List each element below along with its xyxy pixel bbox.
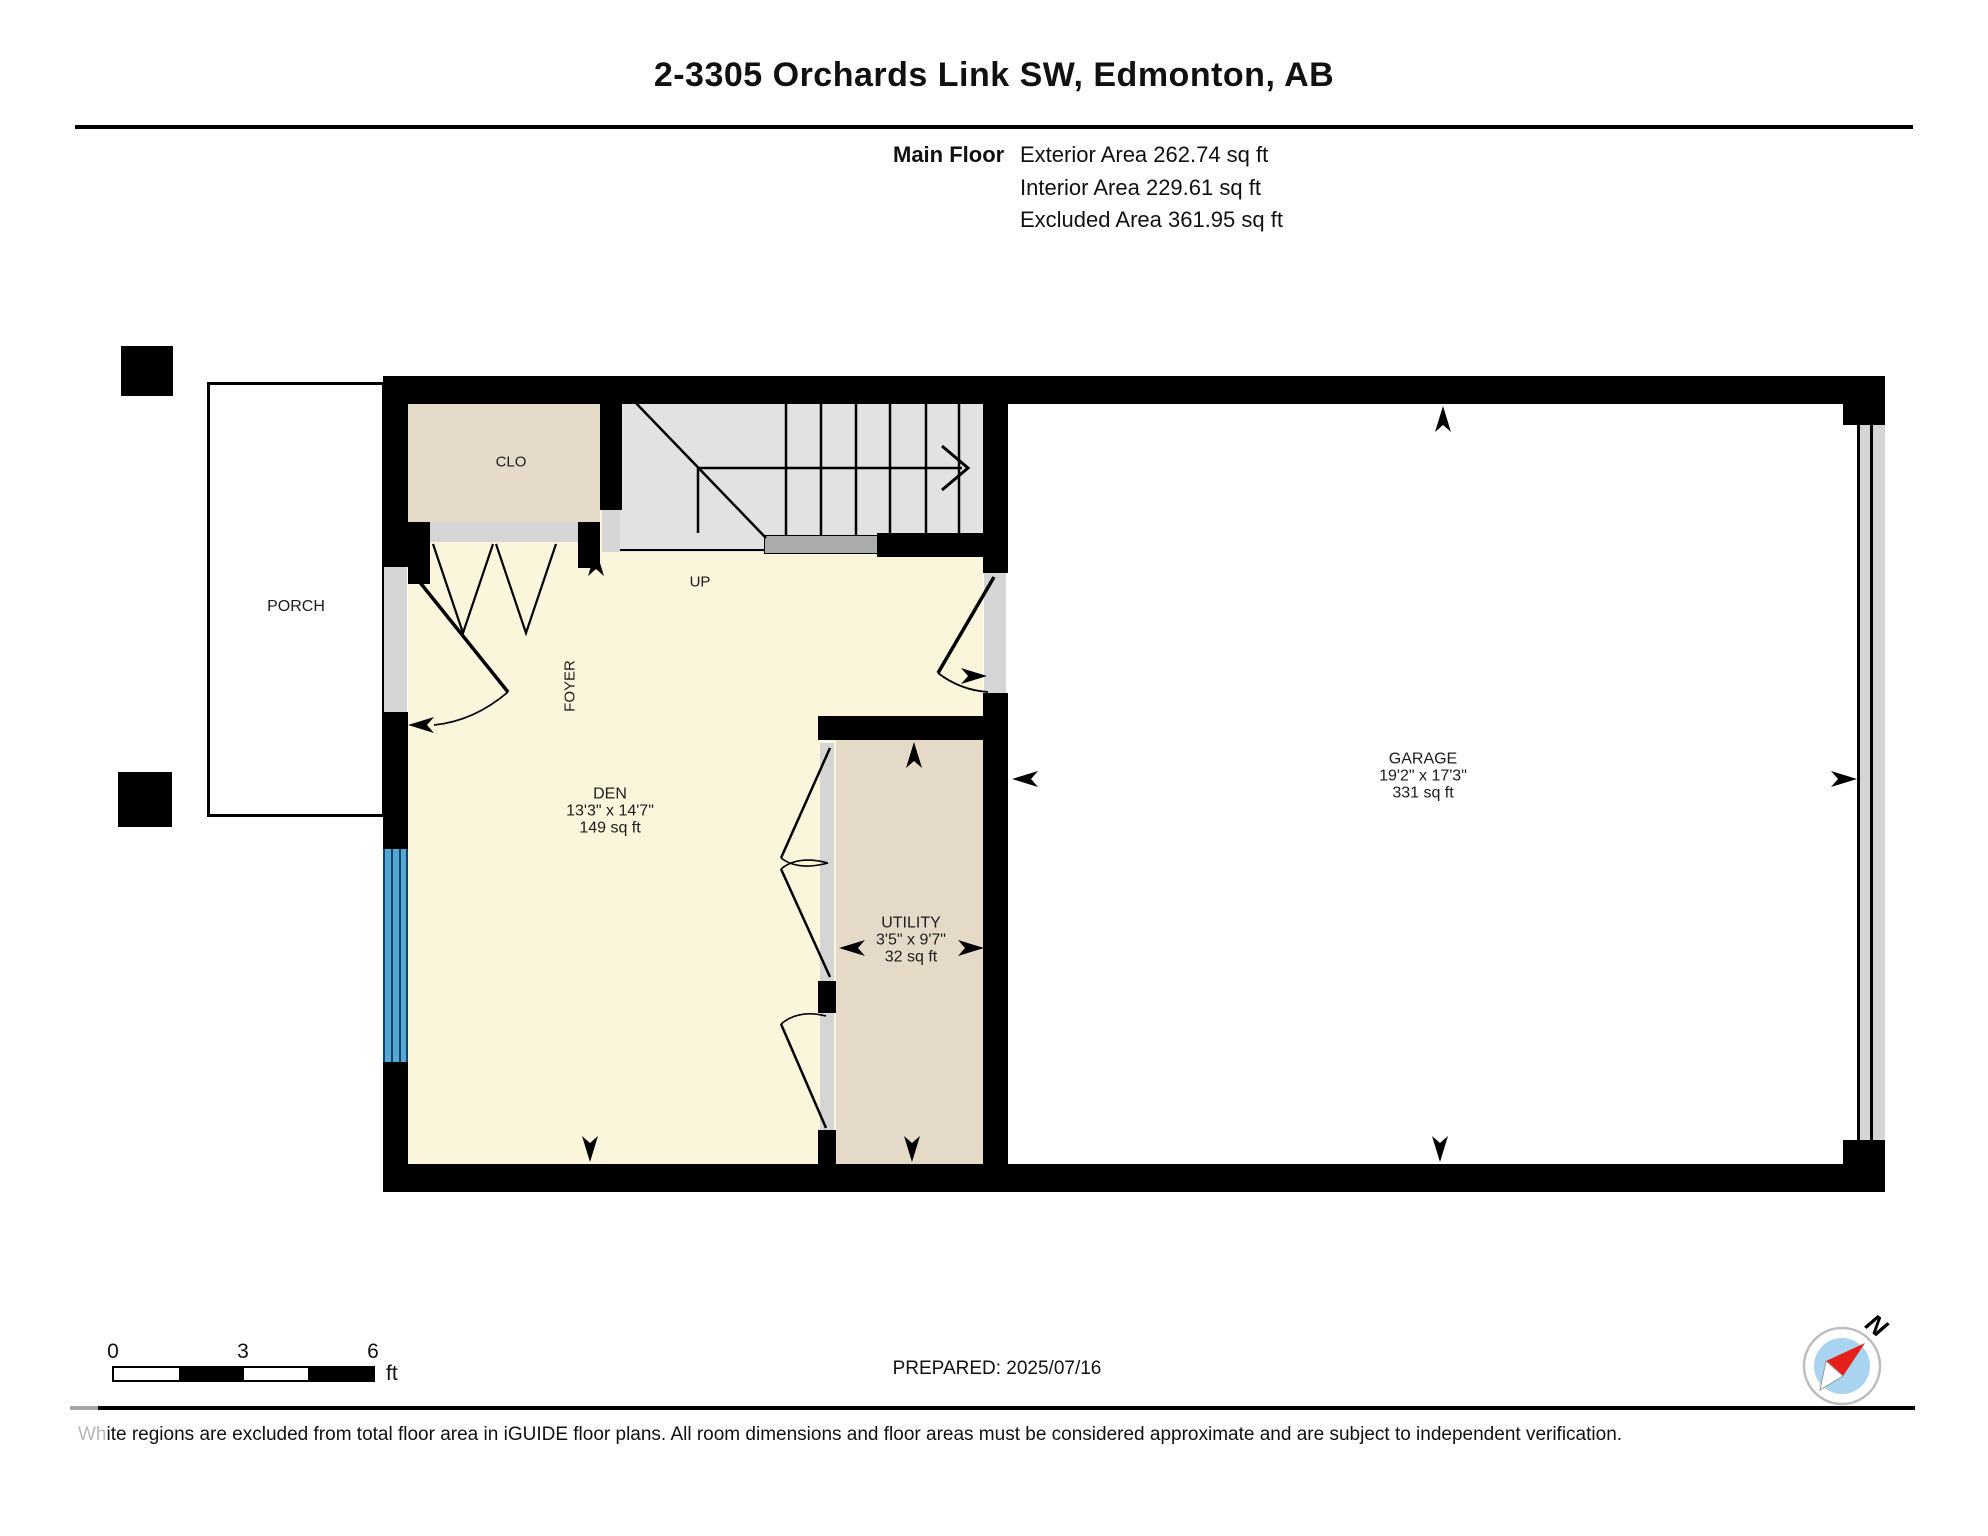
utility-label: UTILITY 3'5" x 9'7" 32 sq ft [876, 915, 946, 966]
entry-door-jamb [384, 567, 407, 712]
scale-tick-3: 3 [237, 1340, 249, 1364]
porch-label: PORCH [267, 598, 325, 616]
footer-divider [98, 1406, 1915, 1410]
floor-plan-page: 2-3305 Orchards Link SW, Edmonton, AB Ma… [0, 0, 1988, 1536]
room-dims: 19'2" x 17'3" [1379, 768, 1467, 785]
scale-unit-label: ft [386, 1362, 398, 1386]
utility-door-jamb-upper [820, 743, 834, 981]
scale-tick-0: 0 [107, 1340, 119, 1364]
porch-post-bottom [118, 772, 172, 827]
room-area: 149 sq ft [566, 820, 654, 837]
garage-door-inner-line [1857, 425, 1860, 1140]
garage-dimension-arrow-up-icon [1435, 406, 1451, 432]
utility-door-jamb-lower [820, 1013, 834, 1130]
closet-post-left [408, 522, 430, 584]
floor-label: Main Floor [893, 142, 1004, 168]
porch-post-top [121, 346, 173, 396]
wall-left-lower [383, 1058, 408, 1164]
interior-area-line: Interior Area 229.61 sq ft [1020, 175, 1261, 201]
room-name: DEN [566, 786, 654, 803]
up-label: UP [690, 574, 711, 591]
den-label: DEN 13'3" x 14'7" 149 sq ft [566, 786, 654, 837]
scale-segment [308, 1368, 373, 1380]
scale-bar [112, 1366, 375, 1382]
closet-post-right [578, 522, 600, 568]
wall-left-upper [383, 404, 408, 567]
page-title: 2-3305 Orchards Link SW, Edmonton, AB [0, 56, 1988, 95]
staircase-area [620, 404, 983, 552]
compass-icon: N [1790, 1308, 1900, 1418]
garage-dimension-arrow-left-icon [1012, 771, 1038, 787]
wall-bottom [383, 1164, 1885, 1192]
wall-right-lower [1860, 1140, 1885, 1164]
garage-door-panel-line [1870, 425, 1873, 1140]
garage-door-post-top [1843, 404, 1860, 425]
disclaimer-lead: Wh [78, 1424, 107, 1445]
title-divider [75, 125, 1913, 129]
room-name: GARAGE [1379, 751, 1467, 768]
wall-closet-stair [600, 404, 622, 510]
room-area: 331 sq ft [1379, 785, 1467, 802]
prepared-date: PREPARED: 2025/07/16 [893, 1358, 1102, 1380]
garage-overhead-door [1860, 425, 1885, 1140]
room-area: 32 sq ft [876, 949, 946, 966]
wall-interior-lower [983, 693, 1008, 1164]
wall-right-upper [1860, 404, 1885, 425]
foyer-label: FOYER [562, 660, 579, 712]
garage-dimension-arrow-down-icon [1432, 1136, 1448, 1162]
wall-stair-bottom [877, 533, 1008, 557]
garage-entry-door-jamb [984, 573, 1006, 693]
room-name: UTILITY [876, 915, 946, 932]
scale-tick-6: 6 [367, 1340, 379, 1364]
closet-label: CLO [496, 454, 527, 471]
wall-top [383, 376, 1885, 404]
utility-post-bottom [818, 1130, 836, 1164]
room-dims: 13'3" x 14'7" [566, 803, 654, 820]
disclaimer-rest: ite regions are excluded from total floo… [107, 1424, 1623, 1445]
utility-post-middle [818, 981, 836, 1013]
disclaimer-text: White regions are excluded from total fl… [78, 1424, 1622, 1446]
scale-segment [244, 1368, 309, 1380]
stair-side-jamb [602, 510, 620, 552]
room-dims: 3'5" x 9'7" [876, 932, 946, 949]
garage-label: GARAGE 19'2" x 17'3" 331 sq ft [1379, 751, 1467, 802]
exterior-area-line: Exterior Area 262.74 sq ft [1020, 142, 1268, 168]
closet-door-track [430, 522, 578, 542]
stair-landing-step [764, 535, 879, 554]
garage-dimension-arrow-right-icon [1831, 771, 1857, 787]
wall-left-middle [383, 712, 408, 845]
garage-door-post-bottom [1843, 1140, 1860, 1164]
scale-segment [114, 1368, 179, 1380]
excluded-area-line: Excluded Area 361.95 sq ft [1020, 207, 1283, 233]
footer-divider-gray [70, 1406, 98, 1410]
wall-utility-top [818, 716, 1008, 740]
scale-segment [179, 1368, 244, 1380]
den-window [383, 845, 408, 1066]
